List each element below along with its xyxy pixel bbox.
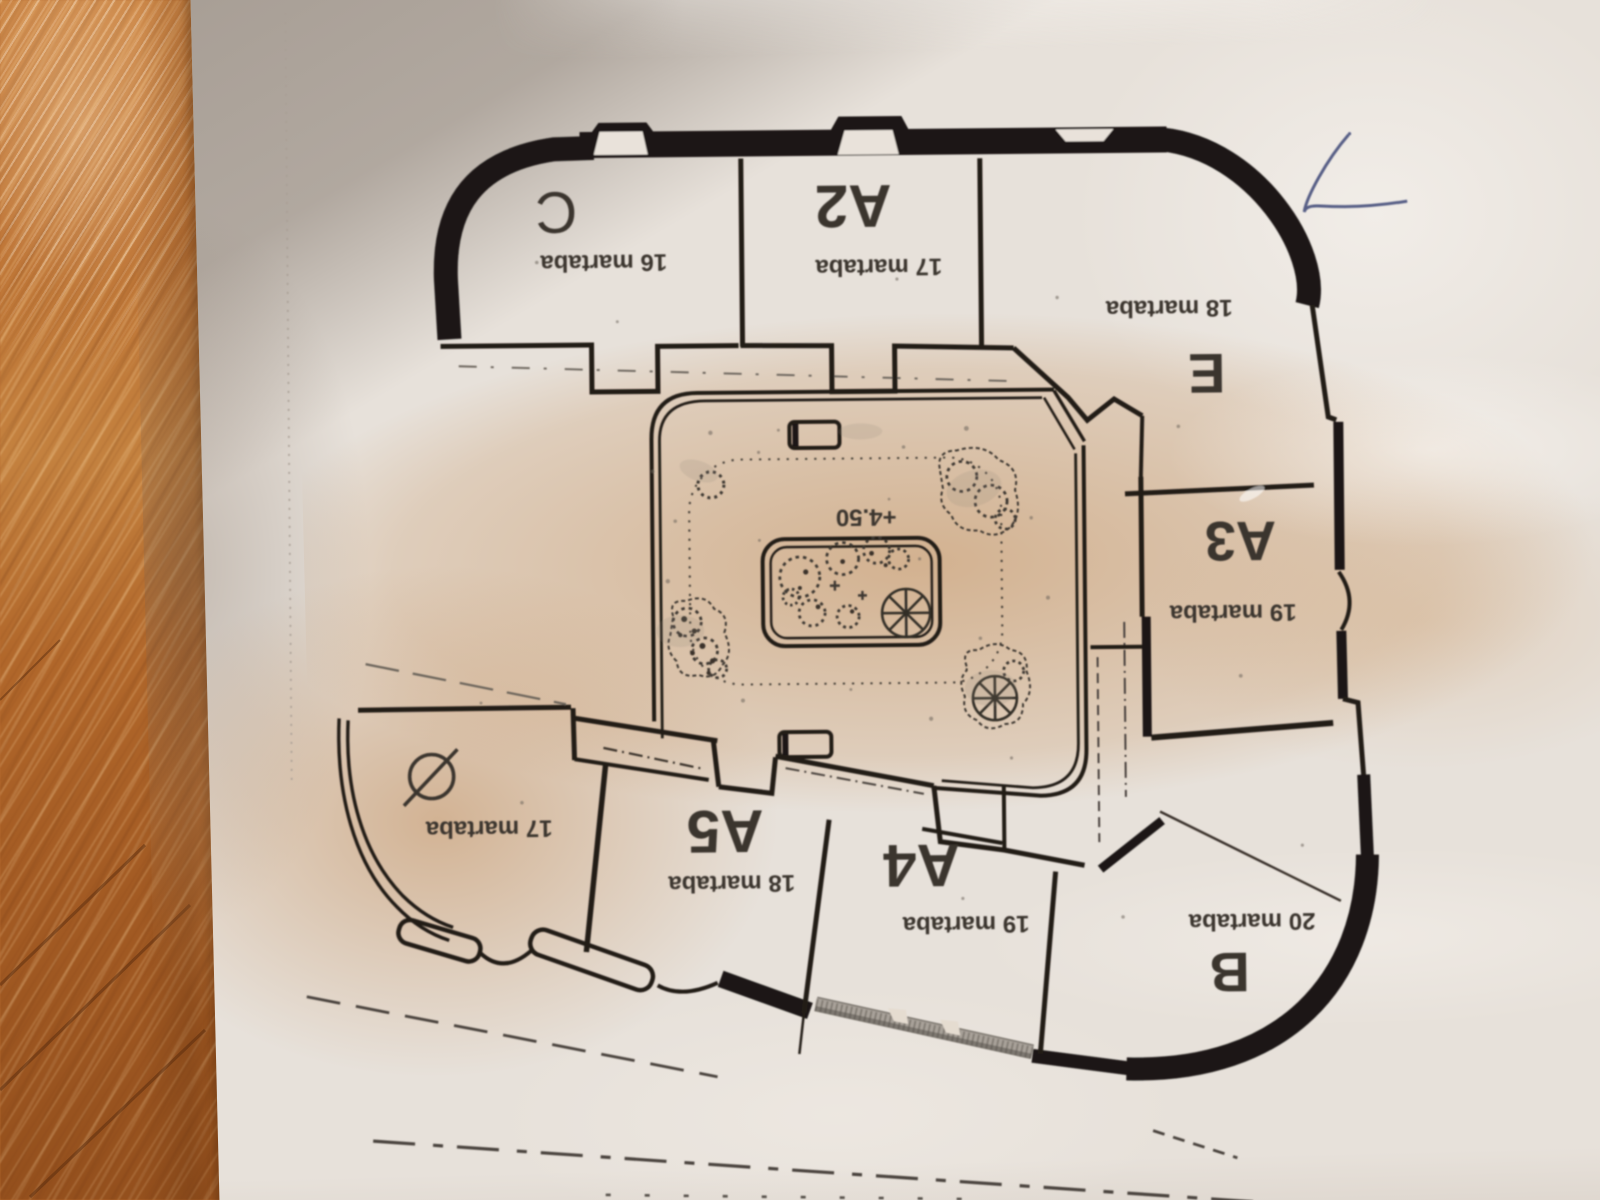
svg-text:A2: A2 bbox=[815, 172, 892, 240]
svg-text:17 martaba: 17 martaba bbox=[425, 814, 553, 842]
svg-text:19 martaba: 19 martaba bbox=[902, 910, 1030, 938]
svg-text:18 martaba: 18 martaba bbox=[1105, 294, 1233, 322]
svg-text:19 martaba: 19 martaba bbox=[1169, 598, 1297, 626]
svg-text:C: C bbox=[535, 179, 578, 244]
svg-text:A3: A3 bbox=[1204, 509, 1276, 573]
svg-text:20 martaba: 20 martaba bbox=[1188, 907, 1316, 935]
svg-text:17 martaba: 17 martaba bbox=[815, 253, 943, 281]
svg-text:A5: A5 bbox=[687, 797, 764, 865]
svg-text:A4: A4 bbox=[882, 831, 960, 899]
svg-text:E: E bbox=[1188, 342, 1226, 405]
svg-text:18 martaba: 18 martaba bbox=[668, 869, 796, 897]
svg-text:B: B bbox=[1209, 941, 1250, 1004]
svg-text:16 martaba: 16 martaba bbox=[540, 248, 668, 276]
svg-text:+4.50: +4.50 bbox=[836, 503, 897, 531]
